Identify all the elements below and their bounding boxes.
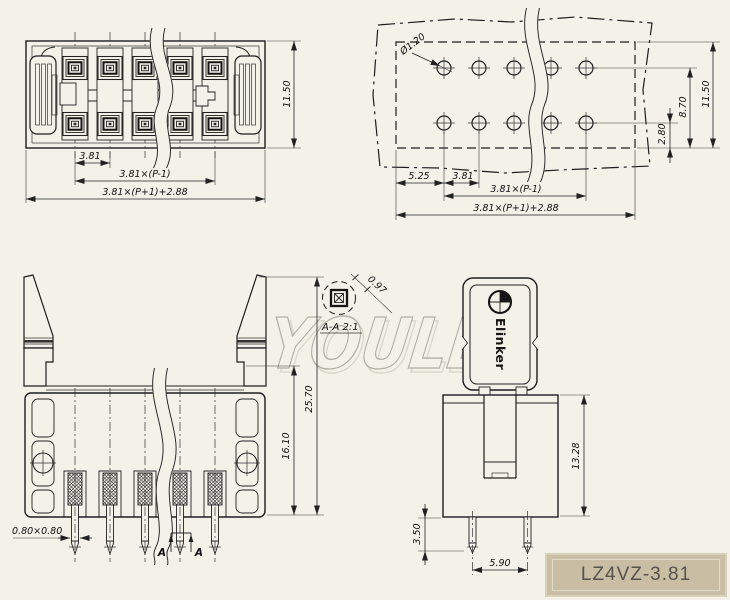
drill-hole (540, 112, 562, 134)
part-number-plate: LZ4VZ-3.81 (545, 553, 727, 597)
terminal-screw (168, 113, 192, 136)
part-number-text: LZ4VZ-3.81 (581, 564, 691, 586)
drill-hole (503, 57, 525, 79)
dim-pin-pitch: 5.90 (489, 558, 510, 569)
pcb-view: Ø1.20 5.25 3.81 3.81×(P-1) 3.81×(P+1)+2.… (373, 8, 720, 220)
flange-right (237, 275, 266, 348)
dim-top-height: 11.50 (282, 80, 293, 107)
terminal-screw (63, 57, 87, 80)
terminal-screw (98, 57, 122, 80)
terminal-screw (63, 113, 87, 136)
end-latch-left (30, 47, 57, 134)
dim-pcb-pitch: 3.81 (452, 171, 473, 182)
dim-front-body-height: 16.10 (281, 432, 292, 459)
flange-left (24, 275, 53, 348)
dim-side-height: 13.28 (571, 442, 582, 469)
section-label-left: A (157, 547, 166, 559)
side-body-outline (443, 395, 558, 517)
part-number-inner-frame: LZ4VZ-3.81 (552, 559, 720, 591)
dim-top-pitch: 3.81 (79, 151, 100, 162)
terminal-screw (203, 57, 227, 80)
terminal-screw (133, 113, 157, 136)
brand-logo-text: Elinker (493, 318, 508, 370)
detail-label: A-A 2:1 (321, 322, 359, 333)
dim-pin-square: 0.80×0.80 (12, 526, 62, 537)
terminal-screw (168, 57, 192, 80)
drawing-sheet: YOULE YOULE (0, 0, 730, 600)
drill-hole (433, 112, 455, 134)
dim-pcb-row-offset: 2.80 (657, 123, 668, 144)
dim-detail-width: 0.97 (365, 274, 388, 296)
pcb-outline-dashed (396, 42, 635, 148)
dim-top-total: 3.81×(P+1)+2.88 (102, 187, 187, 198)
dim-front-total-height: 25.70 (304, 385, 315, 412)
drill-hole (503, 112, 525, 134)
terminal-screw (203, 113, 227, 136)
top-view: 11.50 3.81 3.81×(P-1) 3.81×(P+1)+2.88 (26, 28, 301, 203)
drill-hole (468, 112, 490, 134)
dim-pcb-height: 11.50 (701, 80, 712, 107)
terminal-screw (98, 113, 122, 136)
section-label-right: A (194, 547, 203, 559)
watermark-text: YOULE (263, 304, 495, 385)
end-latch-right (234, 47, 261, 134)
drill-hole (468, 57, 490, 79)
dim-pcb-row-edge: 8.70 (678, 96, 689, 117)
dim-pcb-edge: 5.25 (408, 171, 429, 182)
dim-pcb-total: 3.81×(P+1)+2.88 (473, 203, 558, 214)
dim-pin-length: 3.50 (412, 523, 423, 544)
dim-pcb-span: 3.81×(P-1) (490, 184, 541, 195)
dim-hole-dia: Ø1.20 (397, 31, 427, 58)
dim-top-span: 3.81×(P-1) (119, 169, 170, 180)
